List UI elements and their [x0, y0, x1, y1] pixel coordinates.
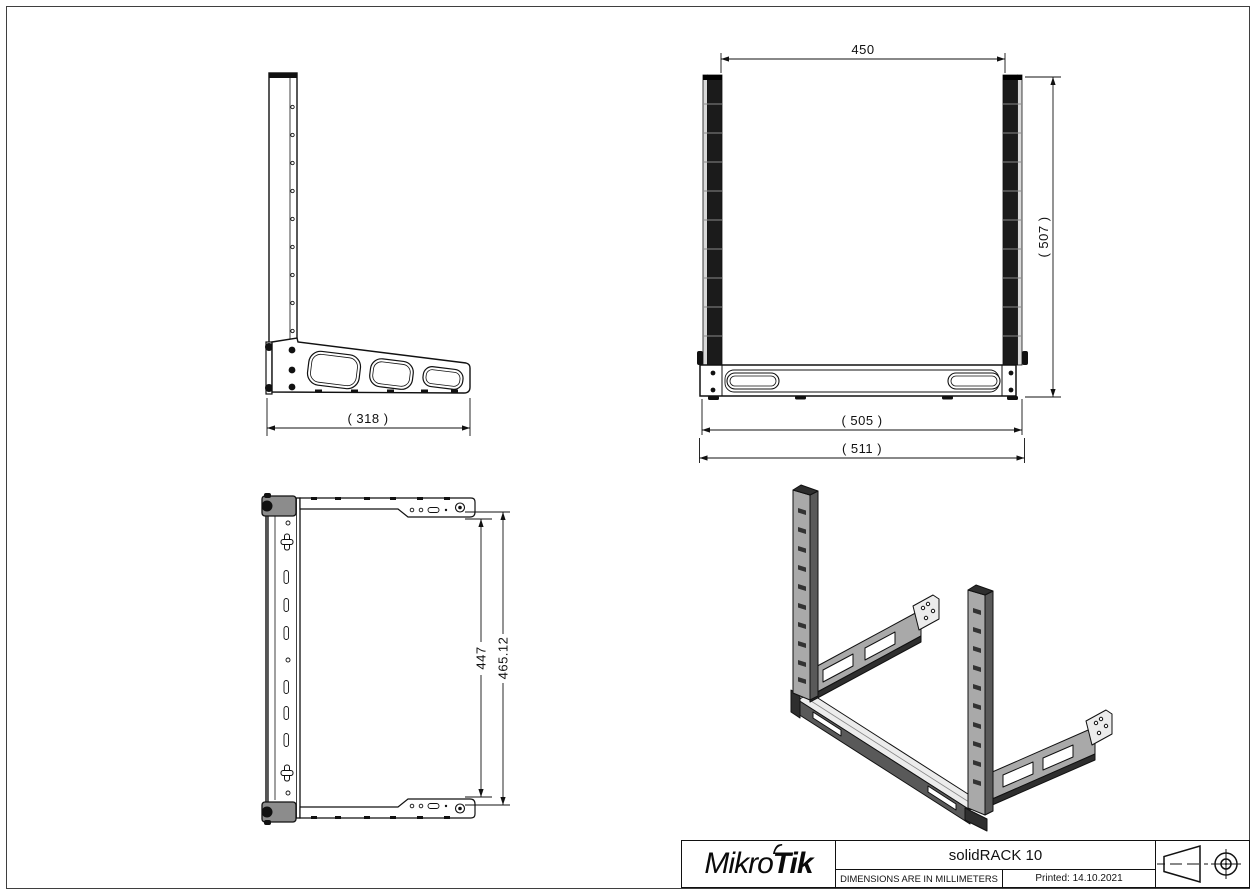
plan-view-drawing: 447 465.12: [260, 490, 515, 830]
dimension-label-447: 447: [474, 646, 489, 669]
projection-symbols: [1156, 841, 1249, 887]
iso-right-post: [968, 585, 993, 815]
brand-logo: MikroTik: [682, 841, 836, 887]
brand-logo-prefix: Mikro: [704, 847, 772, 880]
side-view-drawing: ( 318 ): [263, 66, 478, 441]
dimension-label-465: 465.12: [496, 637, 511, 680]
plan-top-arm: [300, 497, 475, 517]
brand-waves-icon: [768, 840, 788, 854]
left-side-tab: [697, 351, 703, 365]
concentric-target-icon: [1211, 849, 1241, 879]
title-block: MikroTik solidRACK 10 DIMENSIONS ARE IN …: [681, 840, 1250, 888]
dimension-label-505: ( 505 ): [841, 413, 882, 428]
dimension-label-507: ( 507 ): [1036, 216, 1051, 257]
drawing-sheet: ( 318 ): [0, 0, 1256, 895]
printed-date: Printed: 14.10.2021: [1003, 870, 1155, 887]
dimension-label-511: ( 511 ): [842, 441, 882, 456]
front-bottom-bar: [700, 365, 1018, 400]
units-note: DIMENSIONS ARE IN MILLIMETERS: [836, 870, 1003, 887]
iso-left-post: [793, 485, 818, 700]
dimension-label-450: 450: [851, 42, 874, 57]
isometric-view-drawing: [783, 478, 1173, 838]
iso-right-arm: [990, 710, 1112, 806]
product-title: solidRACK 10: [836, 841, 1155, 870]
plan-bottom-arm: [300, 799, 475, 819]
side-post-cap: [269, 73, 297, 78]
right-side-tab: [1022, 351, 1028, 365]
iso-crossbar: [798, 693, 982, 824]
front-view-drawing: 450 ( 507 ) ( 505 ): [692, 40, 1067, 470]
first-angle-projection-icon: [1157, 846, 1208, 882]
iso-left-arm: [810, 595, 939, 702]
front-right-post: [1003, 75, 1022, 365]
front-left-post: [703, 75, 722, 365]
dimension-label-318: ( 318 ): [347, 411, 388, 426]
